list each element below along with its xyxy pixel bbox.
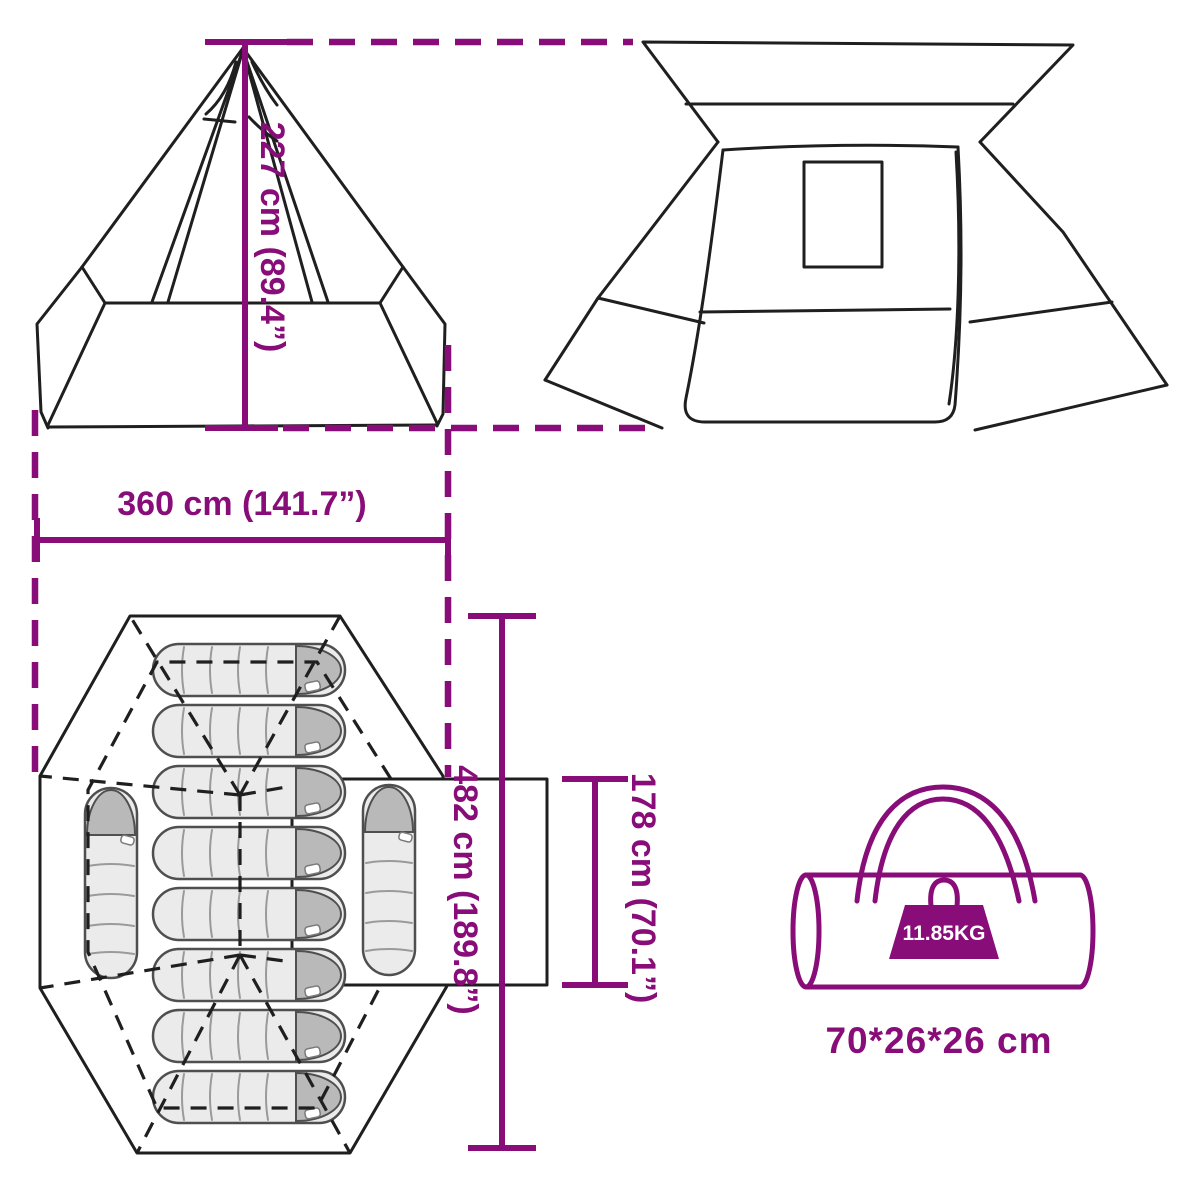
sleeping-bag-horizontal [153, 644, 345, 696]
sleeping-bags-layer [85, 644, 415, 1123]
sleeping-bag-horizontal [153, 1010, 345, 1062]
tent-front-view-icon [37, 48, 445, 428]
tent-rear-view-icon [545, 42, 1167, 430]
sleeping-bag-horizontal [153, 888, 345, 940]
tent-height-label: 227 cm (89.4”) [250, 117, 290, 357]
product-dimension-diagram: 227 cm (89.4”) 360 cm (141.7”) 482 cm (1… [0, 0, 1200, 1200]
package-size-label: 70*26*26 cm [789, 1020, 1089, 1064]
tent-depth-label: 482 cm (189.8”) [441, 760, 483, 1020]
sleeping-bag-horizontal [153, 1071, 345, 1123]
sleeping-bag-horizontal [153, 827, 345, 879]
tent-width-label: 360 cm (141.7”) [92, 486, 392, 526]
sleeping-bag-vertical [363, 785, 415, 975]
porch-width-label: 178 cm (70.1”) [619, 768, 661, 1008]
carry-bag-icon [793, 787, 1093, 987]
sleeping-bag-horizontal [153, 705, 345, 757]
sleeping-bag-vertical [85, 788, 137, 978]
bag-weight-label: 11.85KG [864, 922, 1024, 948]
